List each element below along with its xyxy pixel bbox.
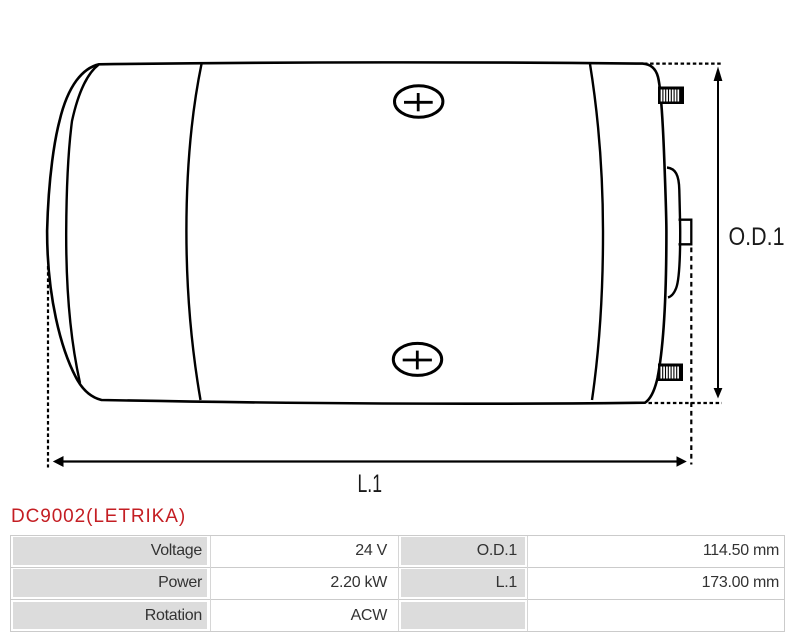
svg-text:L.1: L.1 (358, 470, 383, 498)
svg-text:O.D.1: O.D.1 (729, 223, 785, 251)
